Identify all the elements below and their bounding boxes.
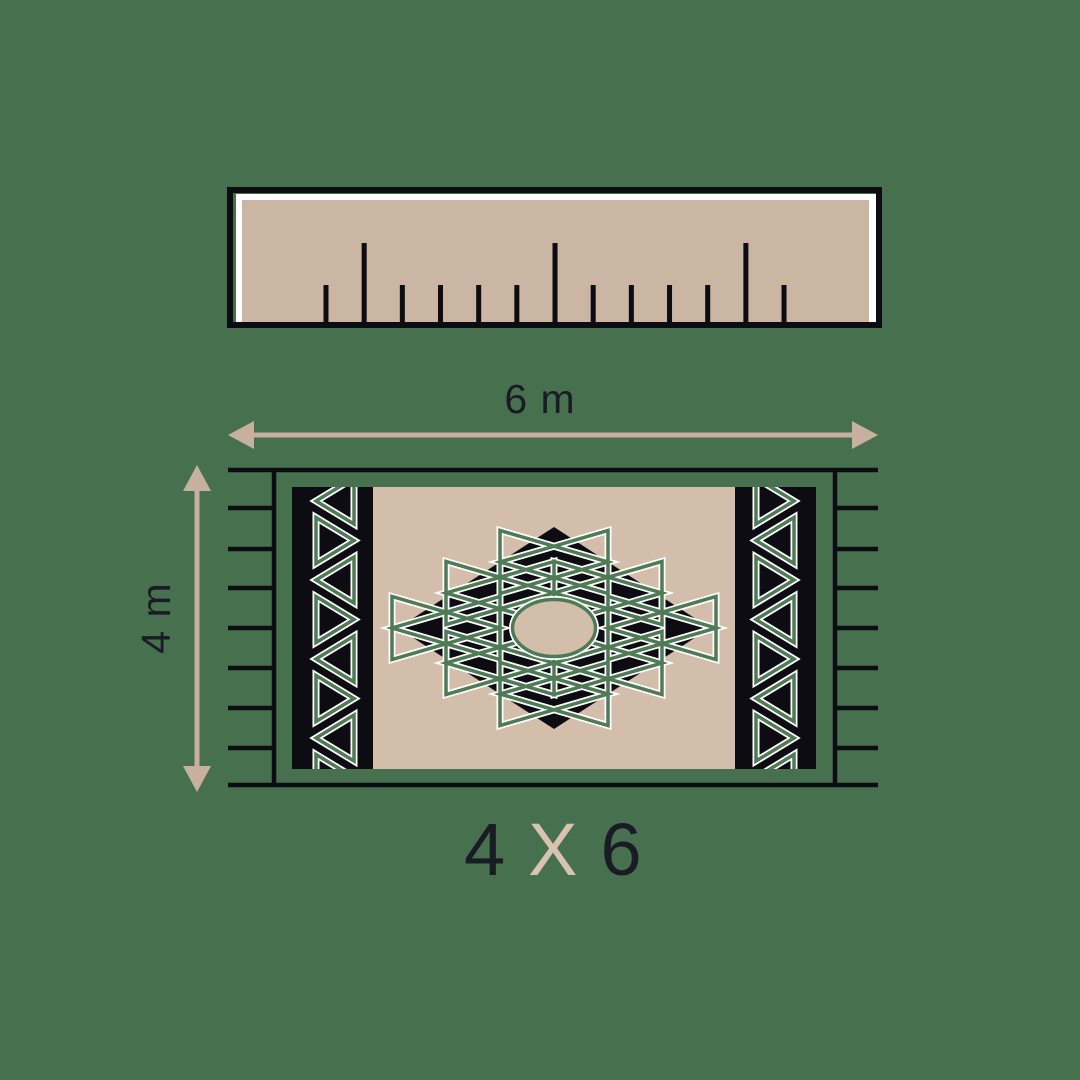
rug-illustration	[228, 468, 878, 801]
rug-size-caption: 4 X 6	[464, 813, 642, 887]
width-dimension-label: 6 m	[504, 376, 575, 422]
rug-size-diagram: 6 m 4 m 4 X 6	[0, 0, 1080, 1080]
size-caption-width: 4	[464, 813, 505, 887]
size-caption-x: X	[528, 813, 577, 887]
height-dimension-label: 4 m	[133, 582, 179, 653]
ruler-illustration	[230, 190, 879, 325]
size-caption-length: 6	[601, 813, 642, 887]
diagram-canvas: 6 m 4 m	[0, 0, 1080, 1080]
